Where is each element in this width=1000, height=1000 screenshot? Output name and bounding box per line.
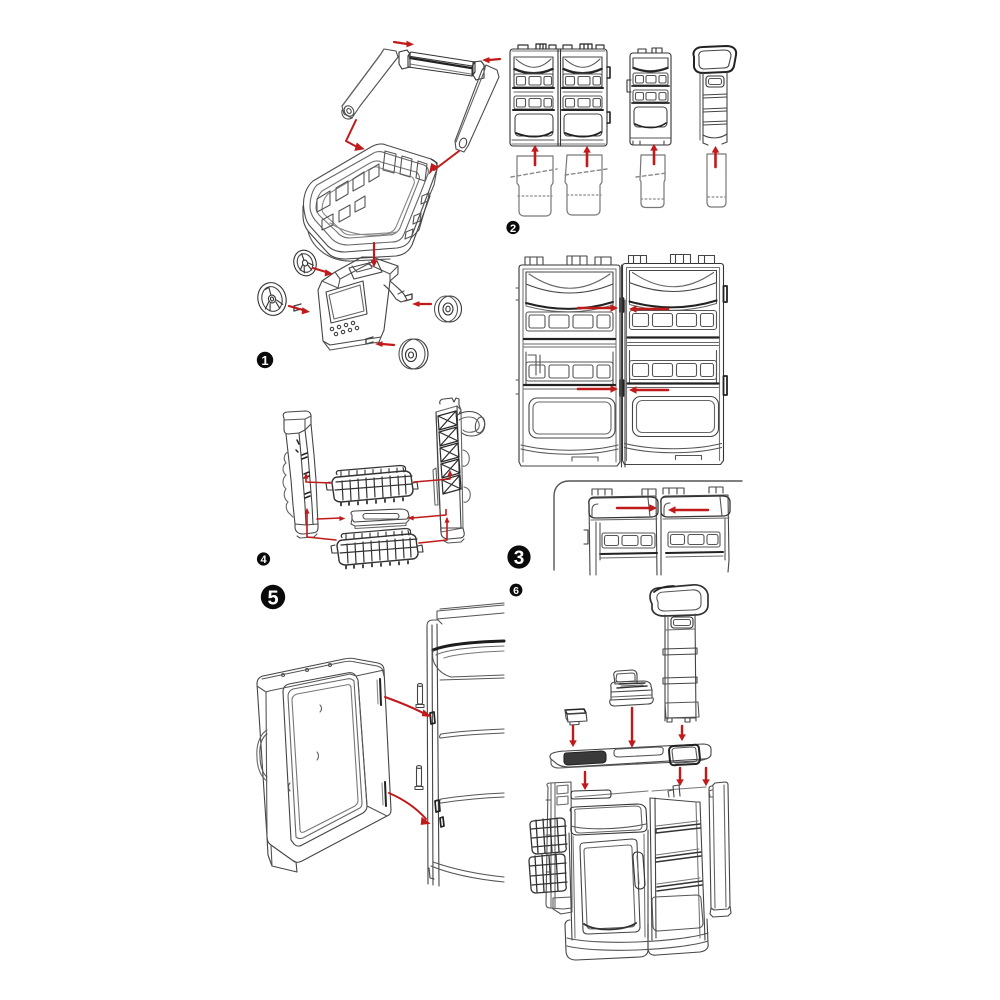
svg-text:1: 1: [261, 353, 268, 368]
svg-text:4: 4: [260, 554, 267, 566]
svg-text:3: 3: [514, 548, 525, 569]
svg-text:2: 2: [510, 223, 516, 235]
svg-text:6: 6: [513, 585, 519, 597]
svg-text:5: 5: [267, 588, 278, 610]
